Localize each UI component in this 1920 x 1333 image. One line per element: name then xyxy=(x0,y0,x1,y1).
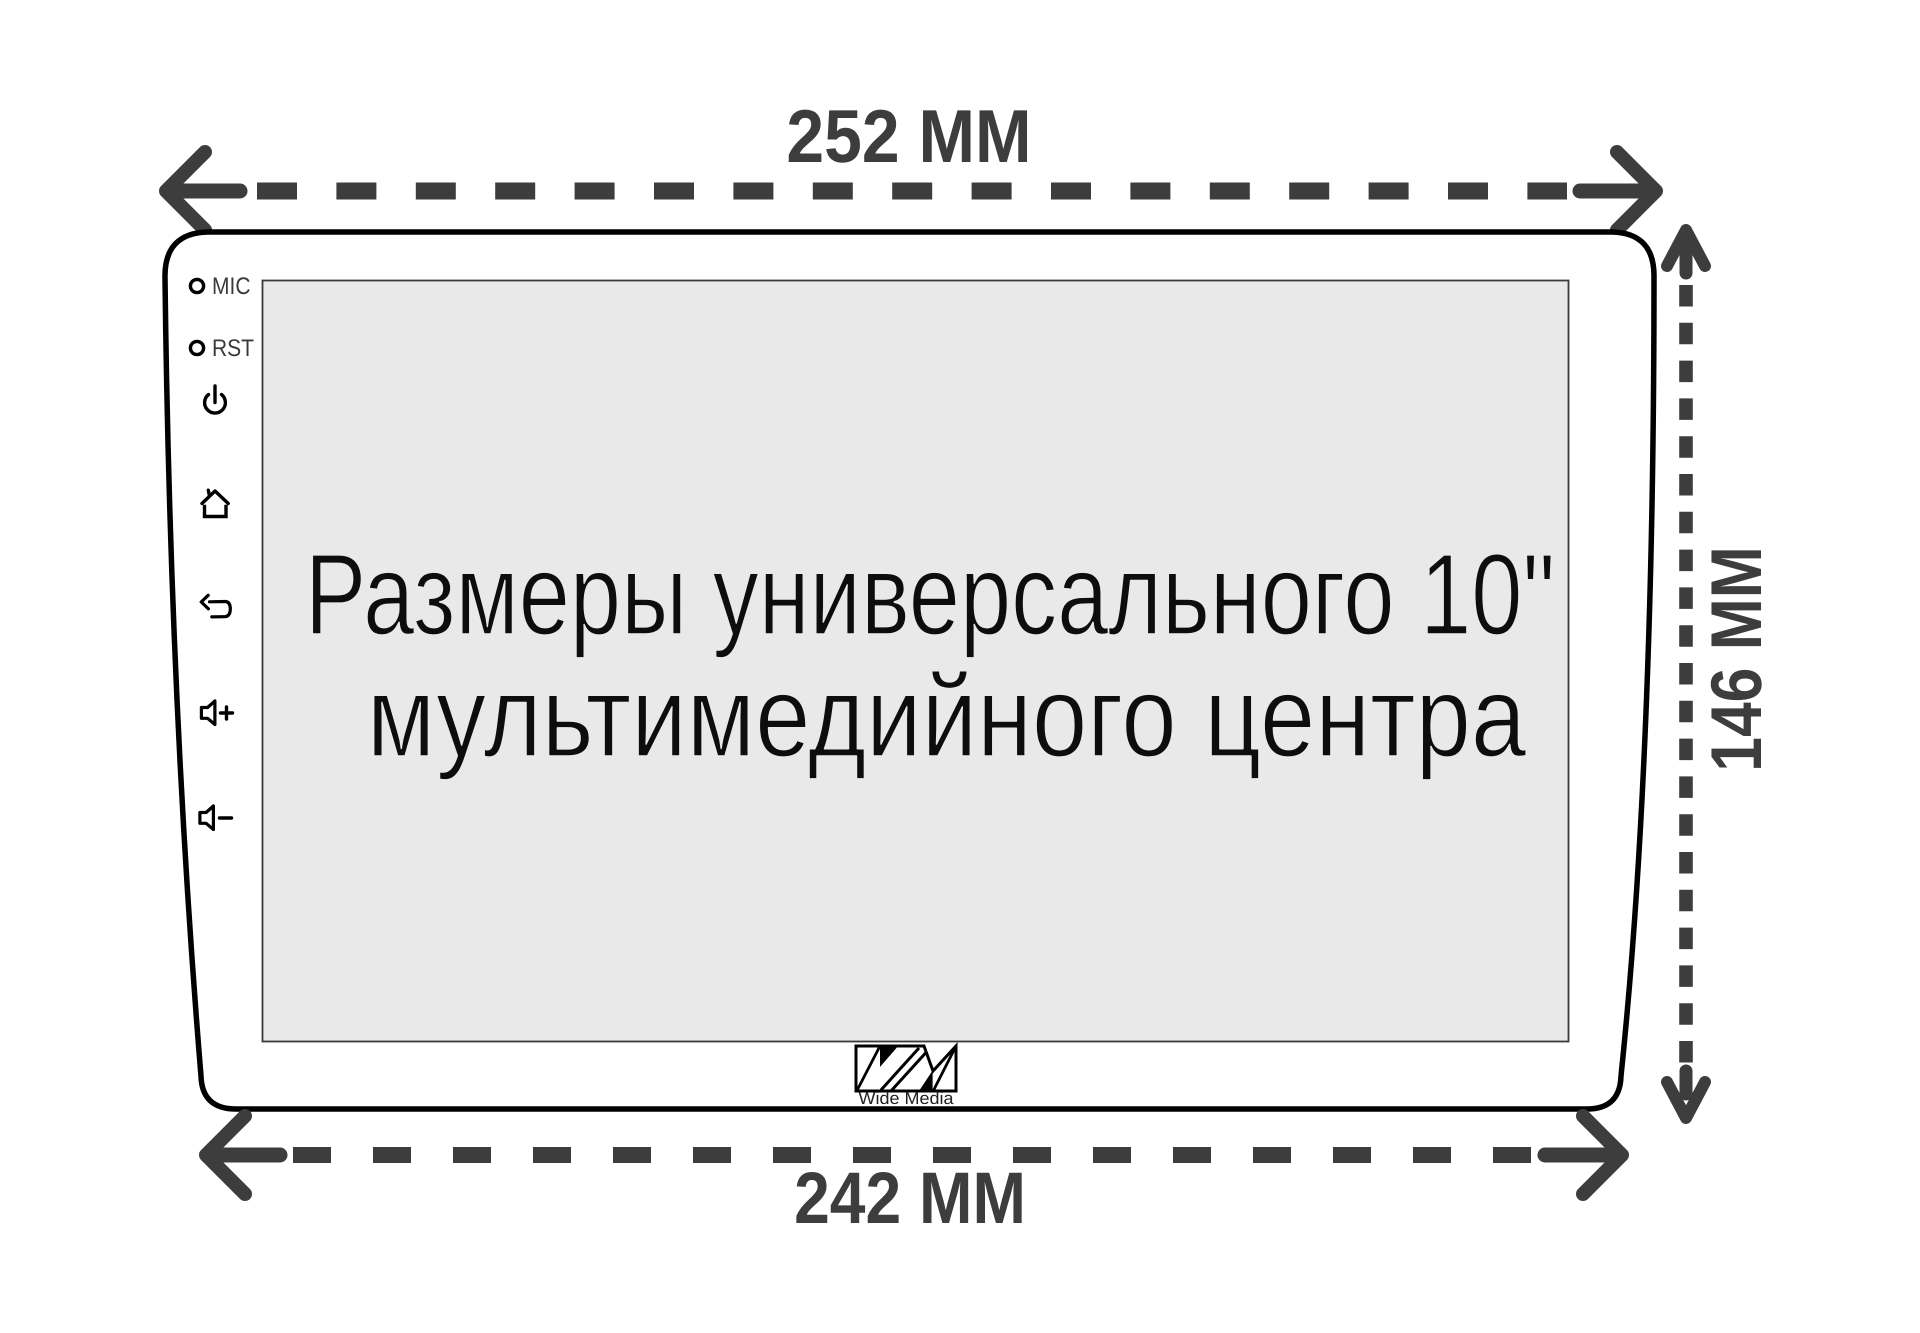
svg-text:MIC: MIC xyxy=(212,273,251,300)
svg-text:252 MM: 252 MM xyxy=(786,94,1031,178)
svg-text:RST: RST xyxy=(212,335,254,362)
svg-text:Размеры универсального 10": Размеры универсального 10" xyxy=(305,531,1555,659)
svg-text:мультимедийного центра: мультимедийного центра xyxy=(367,653,1526,781)
svg-text:146 MM: 146 MM xyxy=(1697,546,1777,772)
svg-text:242 MM: 242 MM xyxy=(794,1158,1026,1239)
svg-text:Wide Media: Wide Media xyxy=(859,1088,954,1108)
